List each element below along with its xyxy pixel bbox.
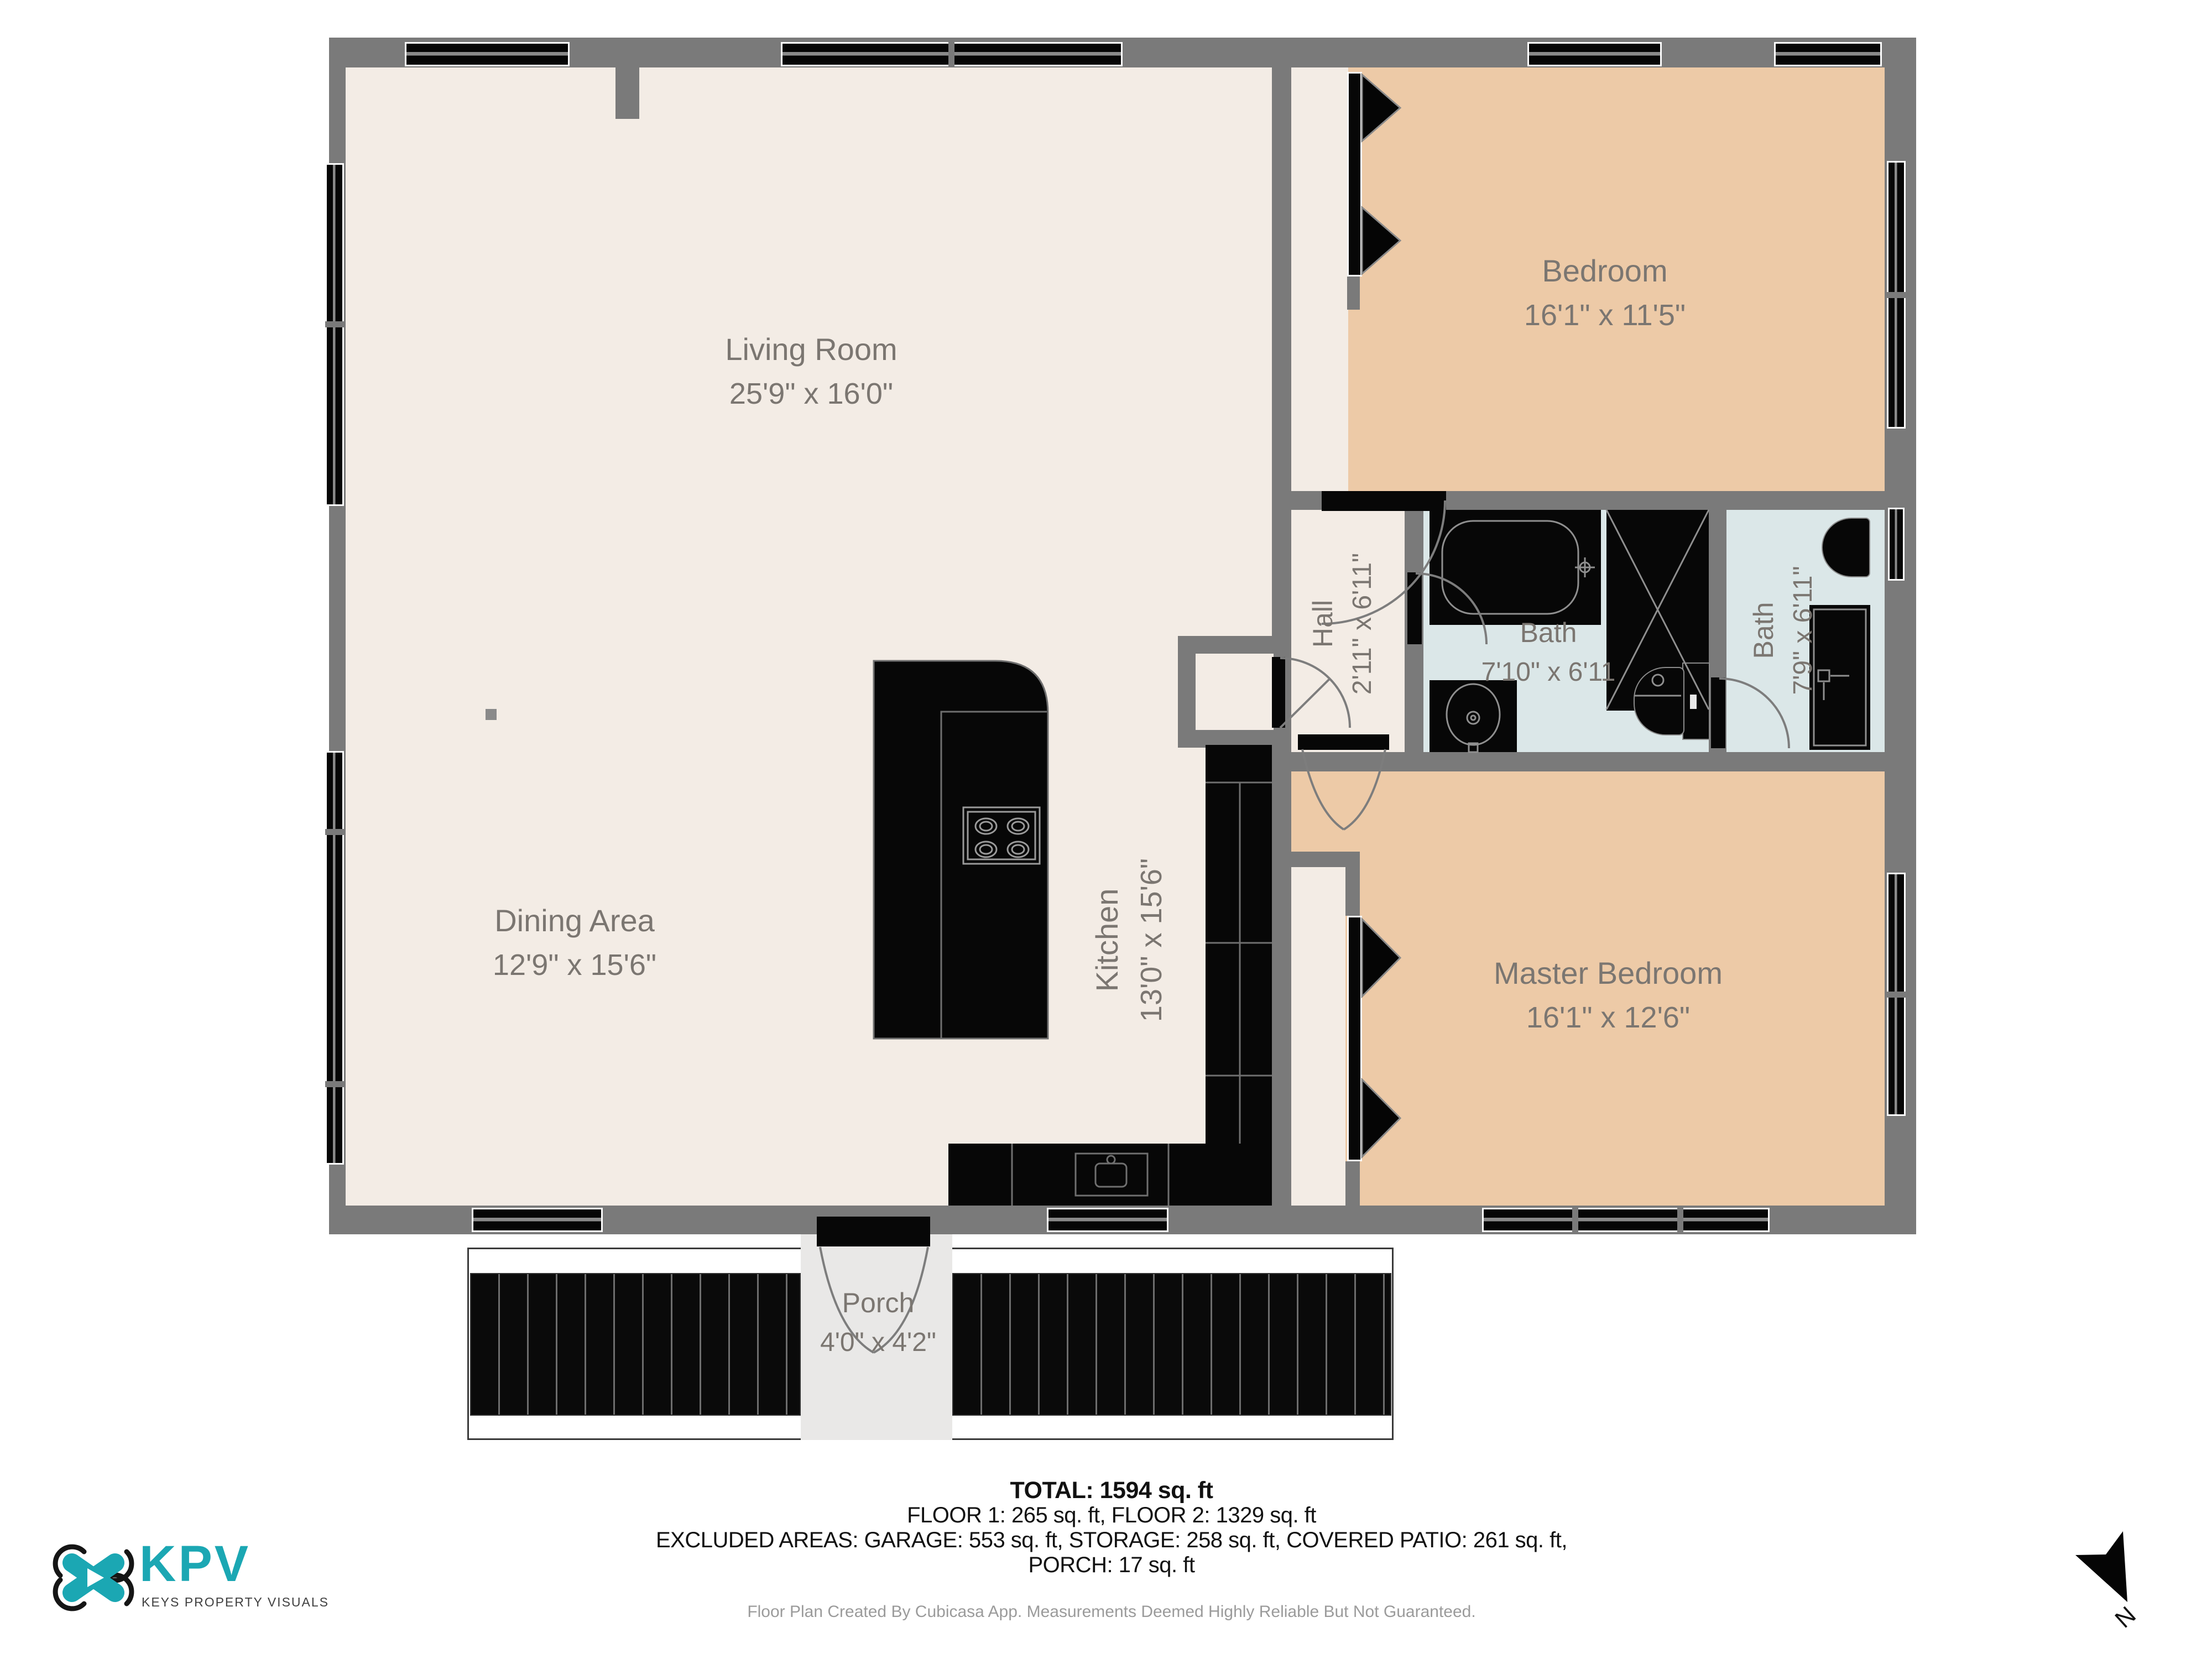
porch-label: Porch 4'0" x 4'2" bbox=[820, 1283, 936, 1363]
room-name: Kitchen bbox=[1085, 858, 1129, 1022]
window-bottom-living bbox=[472, 1208, 603, 1232]
bath1-toilet-button bbox=[1690, 695, 1697, 709]
bedroom-label: Bedroom 16'1" x 11'5" bbox=[1524, 249, 1686, 337]
room-dims: 25'9" x 16'0" bbox=[725, 372, 897, 416]
room-dims: 16'1" x 12'6" bbox=[1494, 995, 1723, 1040]
bath2-label: Bath 7'9" x 6'11" bbox=[1744, 566, 1823, 695]
room-dims: 4'0" x 4'2" bbox=[820, 1323, 936, 1363]
master-closet-stub-bottom bbox=[1345, 1161, 1360, 1206]
window-mullion bbox=[1677, 1208, 1683, 1232]
floor-areas: FLOOR 1: 265 sq. ft, FLOOR 2: 1329 sq. f… bbox=[448, 1503, 1775, 1528]
disclaimer-text: Floor Plan Created By Cubicasa App. Meas… bbox=[448, 1603, 1775, 1621]
living-room-post bbox=[486, 709, 497, 720]
master-bedroom-label: Master Bedroom 16'1" x 12'6" bbox=[1494, 951, 1723, 1040]
kpv-tagline: KEYS PROPERTY VISUALS bbox=[142, 1595, 329, 1610]
room-dims: 2'11" x 6'11" bbox=[1343, 553, 1383, 695]
alcove-floor bbox=[1196, 654, 1274, 730]
porch-deck-left bbox=[470, 1273, 801, 1416]
window-left-lower-triple bbox=[325, 751, 344, 1165]
master-closet bbox=[1347, 916, 1362, 1161]
window-bottom-kitchen bbox=[1047, 1208, 1168, 1232]
window-right-bedroom bbox=[1887, 161, 1906, 429]
kitchen-counter-right bbox=[1206, 745, 1272, 1206]
window-mullion bbox=[1887, 292, 1906, 298]
front-door bbox=[817, 1217, 930, 1246]
master-closet-stub-top bbox=[1345, 867, 1360, 916]
room-name: Bath bbox=[1481, 613, 1616, 653]
window-mullion bbox=[325, 829, 344, 835]
window-bottom-master bbox=[1482, 1208, 1770, 1232]
living-dining-kitchen-floor bbox=[346, 67, 1272, 1206]
total-area: TOTAL: 1594 sq. ft bbox=[448, 1478, 1775, 1503]
kitchen-label: Kitchen 13'0" x 15'6" bbox=[1085, 858, 1173, 1022]
room-dims: 13'0" x 15'6" bbox=[1129, 858, 1173, 1022]
window-top-bedroom bbox=[1527, 42, 1662, 66]
kpv-logo-icon bbox=[55, 1547, 132, 1609]
window-top-double bbox=[781, 42, 1123, 66]
window-mullion bbox=[325, 321, 344, 327]
room-name: Dining Area bbox=[493, 899, 656, 943]
floor-plan-page: Living Room 25'9" x 16'0" Dining Area 12… bbox=[0, 0, 2212, 1659]
bath1-door bbox=[1407, 572, 1422, 644]
bath1-label: Bath 7'10" x 6'11 bbox=[1481, 613, 1616, 692]
bedroom-vestibule-floor bbox=[1291, 67, 1348, 491]
kpv-logo-text: KPV bbox=[139, 1535, 251, 1593]
bedroom-closet bbox=[1347, 72, 1362, 276]
window-right-bath2 bbox=[1888, 508, 1905, 581]
porch-area: PORCH: 17 sq. ft bbox=[448, 1553, 1775, 1578]
window-mullion bbox=[1572, 1208, 1578, 1232]
room-name: Living Room bbox=[725, 327, 897, 372]
master-bedroom-door bbox=[1298, 734, 1389, 750]
room-dims: 7'9" x 6'11" bbox=[1783, 566, 1823, 695]
room-dims: 16'1" x 11'5" bbox=[1524, 293, 1686, 337]
window-left-upper bbox=[325, 163, 344, 506]
room-name: Porch bbox=[820, 1283, 936, 1323]
living-room-label: Living Room 25'9" x 16'0" bbox=[725, 327, 897, 416]
north-arrow-icon bbox=[2075, 1531, 2127, 1602]
room-name: Bath bbox=[1744, 566, 1783, 695]
excluded-areas: EXCLUDED AREAS: GARAGE: 553 sq. ft, STOR… bbox=[448, 1528, 1775, 1553]
room-name: Hall bbox=[1303, 553, 1343, 695]
bedroom-closet-stub bbox=[1347, 276, 1360, 310]
bath2-door bbox=[1711, 677, 1725, 748]
window-top-right-corner bbox=[1774, 42, 1882, 66]
room-dims: 12'9" x 15'6" bbox=[493, 943, 656, 987]
kitchen-counter-bottom bbox=[948, 1144, 1272, 1206]
top-wall-stub bbox=[615, 67, 639, 119]
window-right-master bbox=[1887, 873, 1906, 1116]
window-mullion bbox=[948, 42, 954, 66]
bedroom-door bbox=[1322, 491, 1446, 511]
room-dims: 7'10" x 6'11 bbox=[1481, 653, 1616, 692]
dining-area-label: Dining Area 12'9" x 15'6" bbox=[493, 899, 656, 987]
alcove-door bbox=[1272, 657, 1285, 728]
master-closet-floor bbox=[1291, 867, 1345, 1206]
room-name: Master Bedroom bbox=[1494, 951, 1723, 995]
window-mullion bbox=[325, 1081, 344, 1087]
porch-deck-right bbox=[952, 1273, 1391, 1416]
bathtub bbox=[1430, 510, 1601, 625]
hall-label: Hall 2'11" x 6'11" bbox=[1303, 553, 1383, 695]
north-label: N bbox=[2110, 1601, 2141, 1634]
window-mullion bbox=[1887, 992, 1906, 998]
window-top-living bbox=[405, 42, 570, 66]
area-summary: TOTAL: 1594 sq. ft FLOOR 1: 265 sq. ft, … bbox=[448, 1478, 1775, 1578]
room-name: Bedroom bbox=[1524, 249, 1686, 293]
master-closet-wall bbox=[1291, 852, 1360, 867]
